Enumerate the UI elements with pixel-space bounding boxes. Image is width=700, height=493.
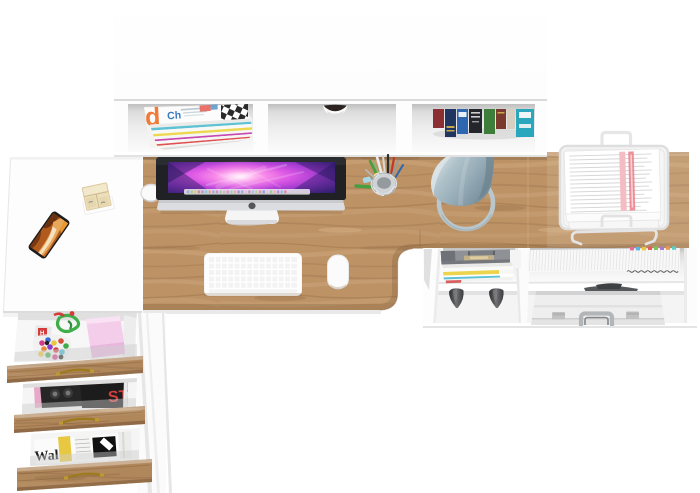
svg-text:Ch: Ch (167, 109, 182, 122)
